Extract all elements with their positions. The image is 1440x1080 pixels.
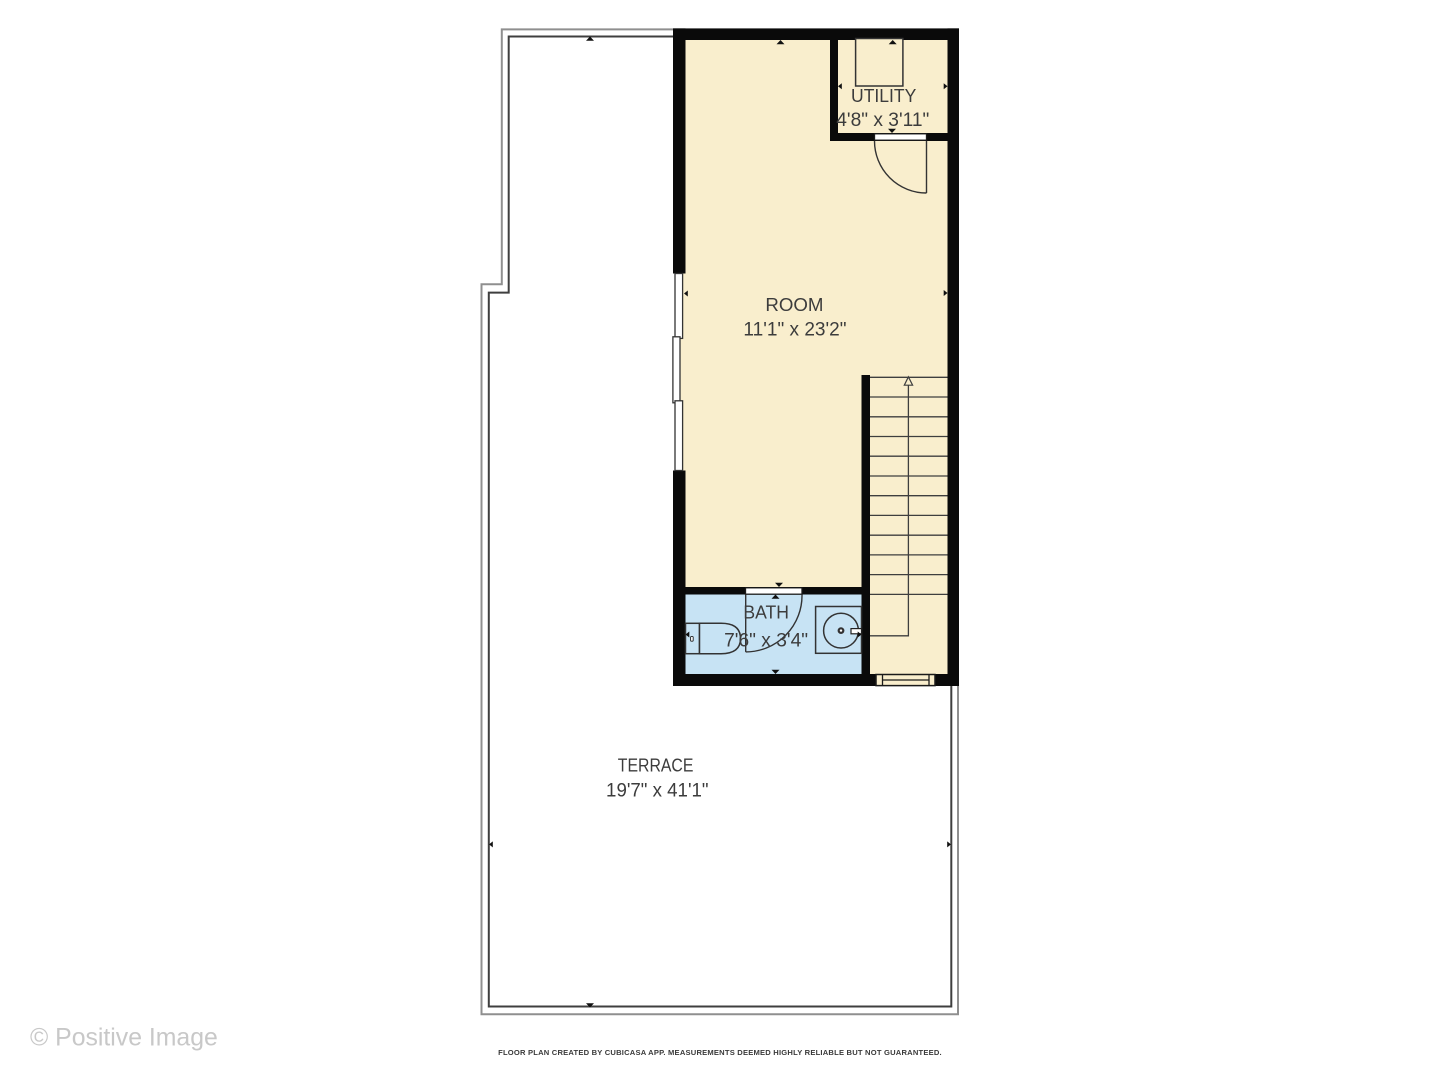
svg-text:7'6" x 3'4": 7'6" x 3'4" bbox=[724, 631, 808, 652]
svg-text:FLOOR PLAN CREATED BY CUBICASA: FLOOR PLAN CREATED BY CUBICASA APP. MEAS… bbox=[498, 1048, 942, 1057]
svg-text:ROOM: ROOM bbox=[765, 295, 823, 315]
svg-text:TERRACE: TERRACE bbox=[618, 756, 694, 776]
svg-text:11'1" x 23'2": 11'1" x 23'2" bbox=[743, 319, 846, 340]
svg-text:UTILITY: UTILITY bbox=[851, 86, 916, 106]
svg-text:4'8" x 3'11": 4'8" x 3'11" bbox=[836, 110, 929, 131]
svg-text:BATH: BATH bbox=[743, 603, 789, 623]
svg-text:© Positive Image: © Positive Image bbox=[30, 1025, 218, 1052]
svg-text:19'7" x 41'1": 19'7" x 41'1" bbox=[606, 781, 709, 802]
